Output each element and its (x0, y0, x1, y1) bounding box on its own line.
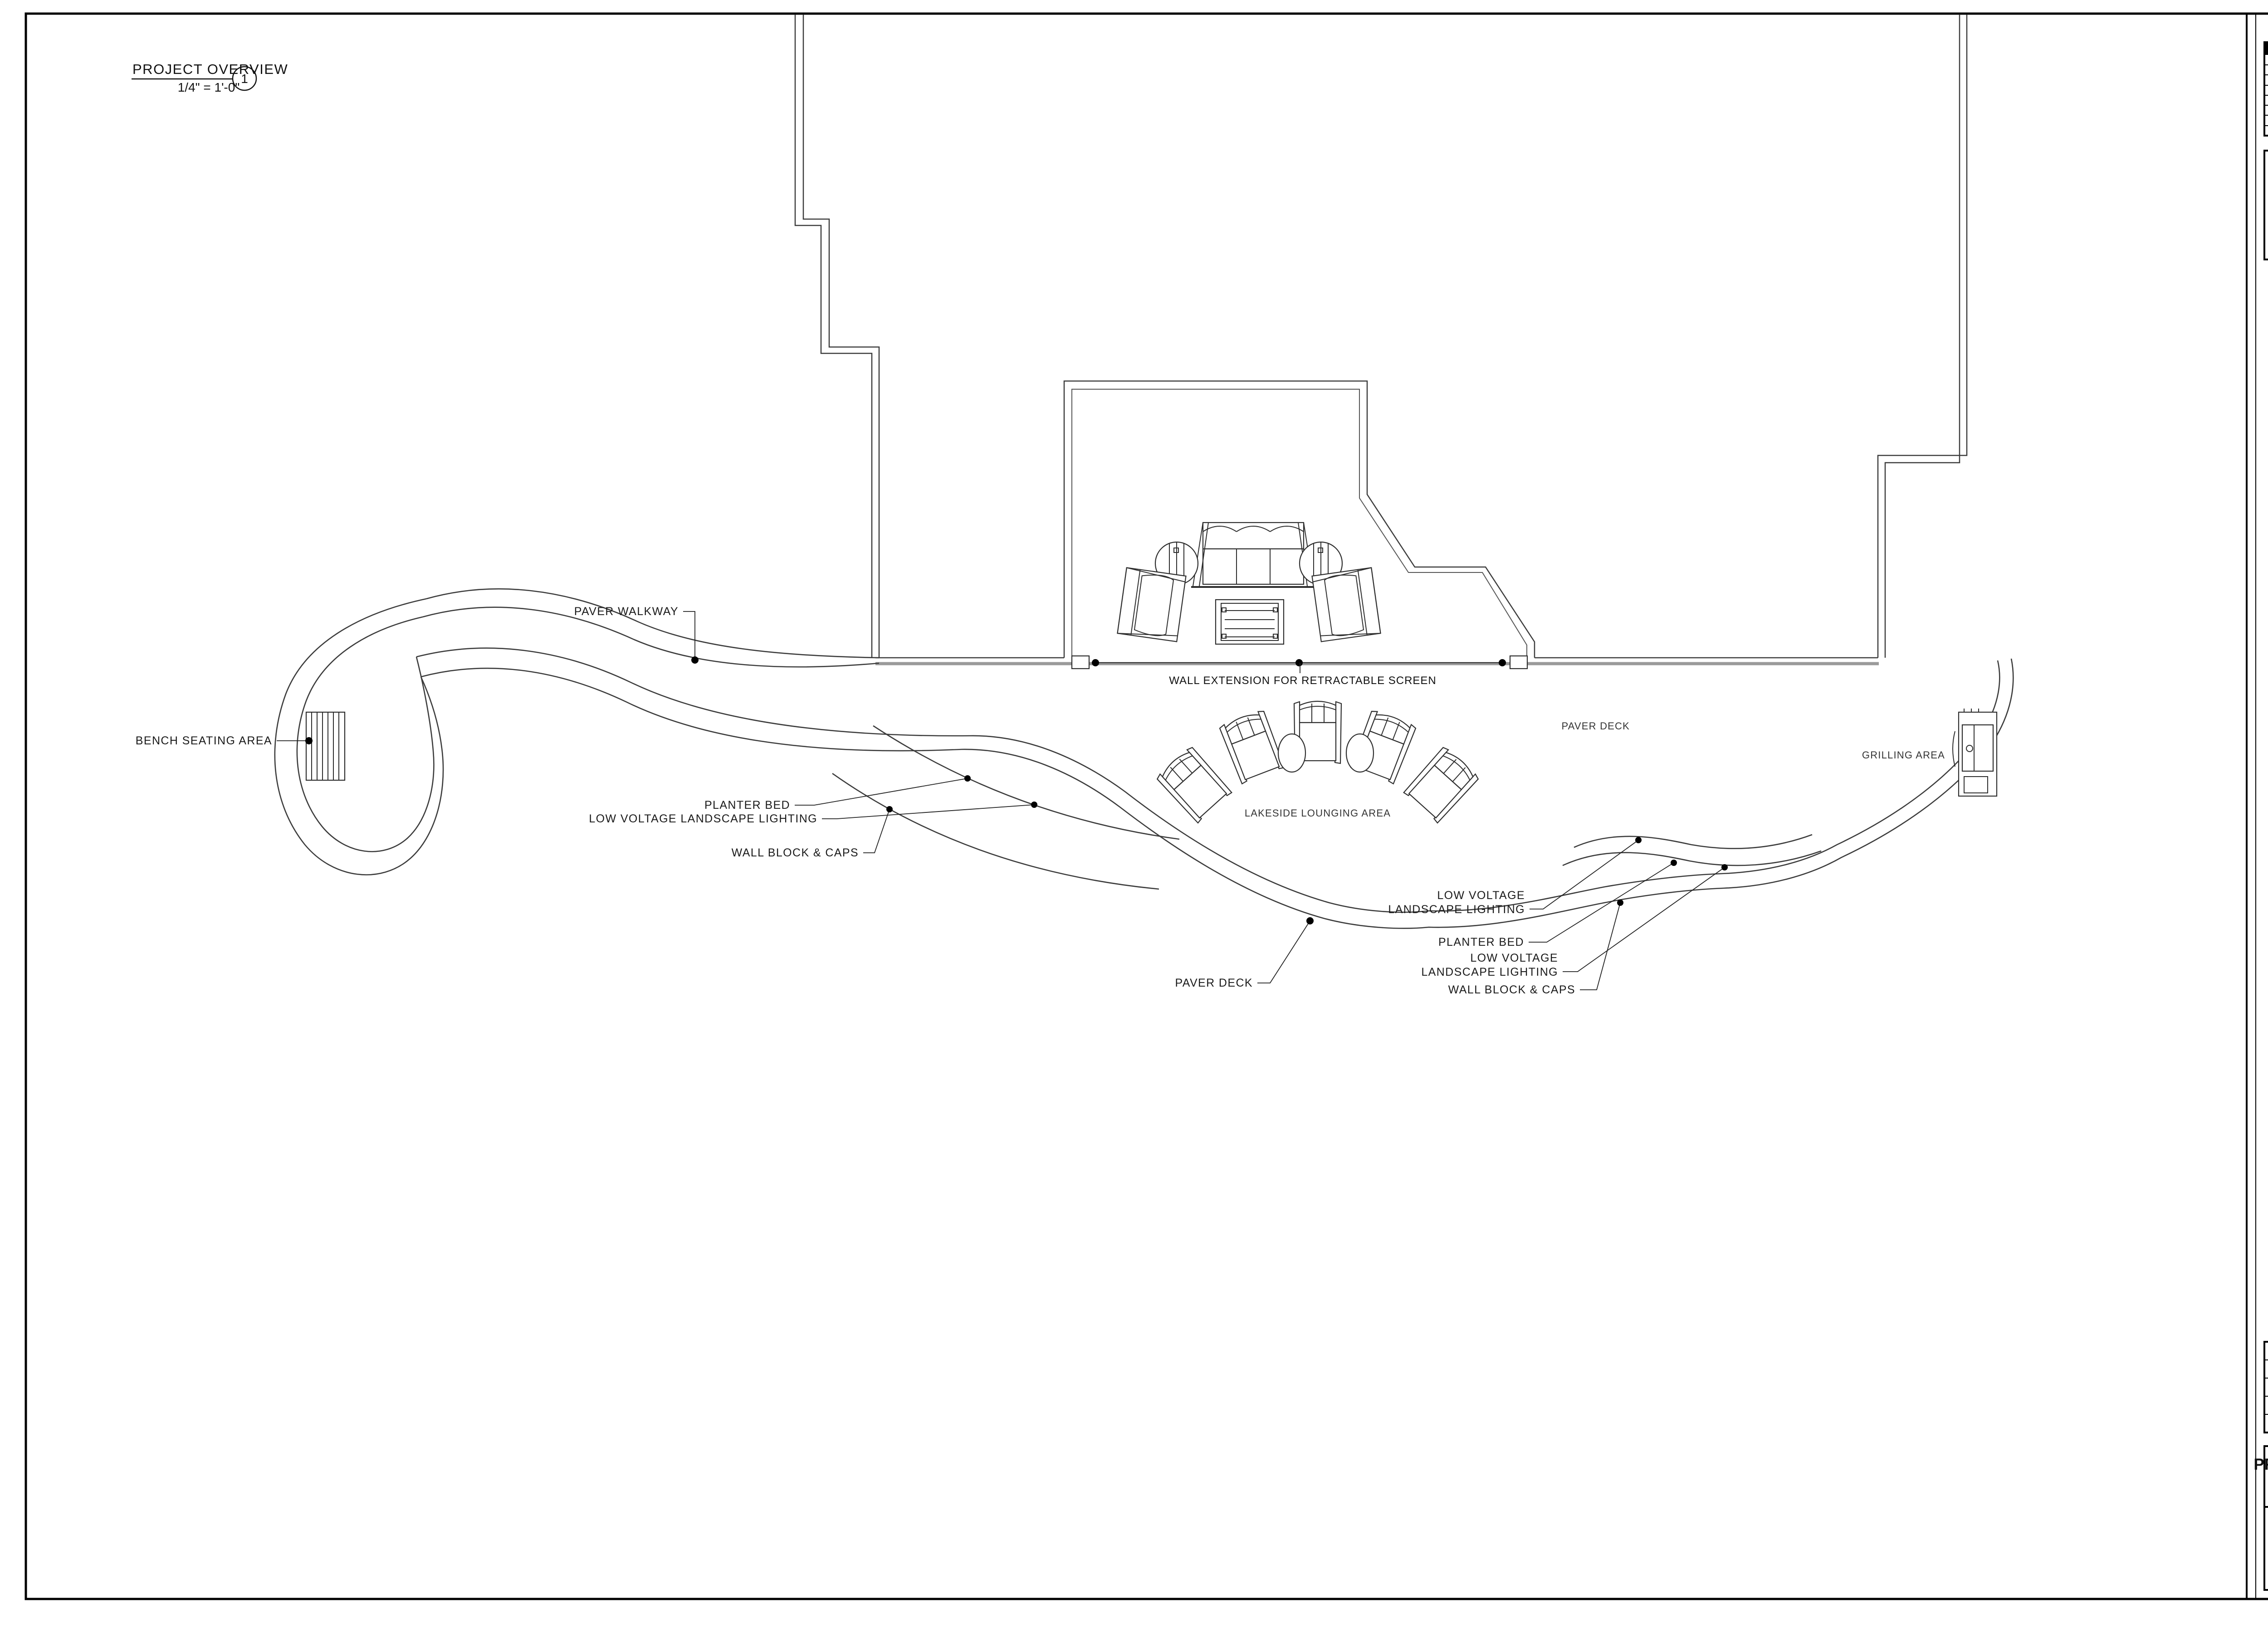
sheet-title: PROJECT OVERVIEW (2253, 1456, 2268, 1473)
club-chair-right (1312, 568, 1380, 642)
lv-r1-dot (1635, 837, 1642, 843)
walkway-line-1 (426, 589, 879, 658)
copyright-frame (2264, 151, 2268, 259)
project-name: LOVE RESIDENCE (2264, 997, 2268, 1334)
lounger-table-left (1278, 734, 1305, 772)
wall-block-right-leader (1580, 903, 1620, 990)
wall-block-right-label: WALL BLOCK & CAPS (1448, 983, 1575, 996)
wall-extension-label: WALL EXTENSION FOR RETRACTABLE SCREEN (1169, 675, 1437, 687)
lounge-furniture (1117, 523, 1380, 644)
club-chair-right-frame (1312, 568, 1380, 642)
project-info-table: PROJECT NO.25030 DATE:03/09/2026 DESIGN:… (2264, 1342, 2268, 1433)
grill: GRILLING AREA (1862, 709, 1997, 796)
drawing-sheet: PROJECT OVERVIEW 1/4" = 1'-0" 1 WALL EXT… (0, 0, 2268, 1633)
lv-r1-label-line2: LANDSCAPE LIGHTING (1388, 903, 1525, 916)
sheet-border (26, 14, 2268, 1599)
revision-table-frame (2264, 42, 2268, 136)
viewport-scale: 1/4" = 1'-0" (178, 80, 240, 94)
paver-deck-bottom-dot (1306, 917, 1314, 924)
lounger-2 (1219, 709, 1285, 784)
paver-walkway-leader (683, 611, 695, 659)
lakeside-label: LAKESIDE LOUNGING AREA (1245, 807, 1391, 819)
club-chair-left-frame (1117, 568, 1186, 642)
planter-bed-right-dot (1671, 860, 1677, 866)
lv-r2-dot (1721, 864, 1728, 870)
grill-burner-ticks (1964, 709, 1979, 712)
grilling-area-label: GRILLING AREA (1862, 749, 1945, 761)
bench-loop-outer (275, 599, 443, 875)
bench-seating-dot (305, 737, 313, 744)
info-table-frame (2264, 1342, 2268, 1433)
screen-pier-left (1072, 656, 1089, 669)
bench-seating-label: BENCH SEATING AREA (136, 734, 272, 747)
club-chair-left (1117, 568, 1186, 642)
paver-walkway-dot (691, 656, 699, 664)
deck-edge-inner (970, 660, 1999, 912)
wall-block-left-label: WALL BLOCK & CAPS (732, 846, 859, 859)
lv-lighting-left-leader (822, 805, 1034, 819)
wall-block-right-dot (1617, 900, 1623, 906)
wall-block-left-dot (886, 806, 893, 812)
brand-logo: PRATT GUYS (2264, 258, 2268, 854)
paver-deck-bottom-leader (1257, 921, 1310, 983)
lv-r1-label-line1: LOW VOLTAGE (1437, 889, 1525, 902)
viewport-title: PROJECT OVERVIEW 1/4" = 1'-0" 1 (132, 61, 288, 94)
planter-arc-right-outer (1563, 851, 1821, 865)
paver-walkway-curves (275, 589, 970, 875)
screen-dim-dot-right (1499, 659, 1506, 666)
screen-dim-dot-left (1092, 659, 1099, 666)
paver-deck-bottom-label: PAVER DECK (1175, 977, 1253, 989)
plan-canvas: PROJECT OVERVIEW 1/4" = 1'-0" 1 WALL EXT… (0, 0, 2268, 1633)
revision-table: DATE REVISION (2264, 42, 2268, 136)
paver-deck-upper-label: PAVER DECK (1561, 720, 1630, 732)
viewport-title-text: PROJECT OVERVIEW (132, 61, 288, 77)
lounger-table-right (1346, 734, 1374, 772)
lv-r2-leader (1563, 867, 1725, 972)
bench (306, 712, 345, 780)
screen-pier-right (1510, 656, 1527, 669)
planter-bed-left-leader (795, 778, 968, 805)
planter-bed-left-dot (964, 775, 971, 782)
lounger-1 (1156, 746, 1232, 823)
lv-r2-label-line2: LANDSCAPE LIGHTING (1421, 966, 1558, 978)
deck-edge-outer (962, 659, 2013, 929)
revision-table-header (2264, 42, 2268, 55)
right-wing-wall-outer (1878, 15, 1967, 658)
grill-body (1962, 725, 1993, 771)
lv-lighting-left-label: LOW VOLTAGE LANDSCAPE LIGHTING (589, 812, 817, 825)
planter-bed-right-leader (1529, 863, 1674, 942)
planter-bed-right-label: PLANTER BED (1438, 936, 1524, 949)
lakeside-loungers: LAKESIDE LOUNGING AREA (1156, 701, 1480, 824)
lounger-5 (1403, 746, 1480, 823)
coffee-table (1216, 600, 1284, 644)
copyright-box: All of the Plans, Images and Content in … (2264, 151, 2268, 259)
sofa (1191, 523, 1315, 587)
house-outline (795, 15, 1967, 669)
left-wing-wall-inner (803, 15, 879, 658)
planter-arc-right-inner (1574, 835, 1812, 849)
sofa-seats (1203, 549, 1304, 584)
right-wing-wall-inner (1885, 15, 1960, 658)
lv-lighting-left-dot (1031, 802, 1037, 808)
paver-walkway-label: PAVER WALKWAY (574, 605, 679, 618)
left-wing-wall-outer (795, 15, 872, 658)
screen-dim-dot-mid (1295, 659, 1303, 666)
lv-r2-label-line1: LOW VOLTAGE (1470, 952, 1558, 964)
planter-bed-left-label: PLANTER BED (704, 799, 790, 812)
viewport-number: 1 (241, 72, 248, 86)
walkway-line-4 (421, 668, 962, 751)
grill-handle (1953, 731, 1955, 767)
